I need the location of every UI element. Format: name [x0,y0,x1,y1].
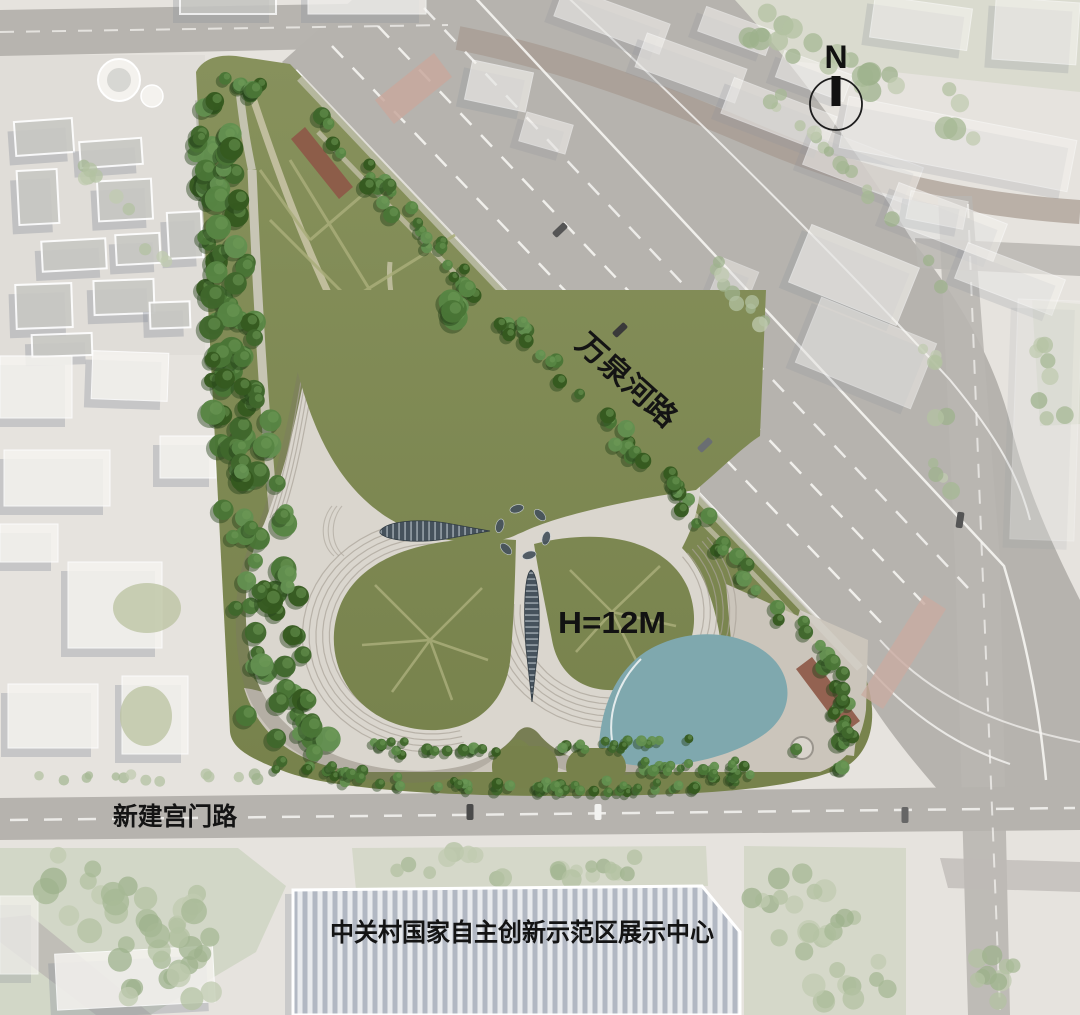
context-building [7,118,75,165]
exhibition-center-building: 中关村国家自主创新示范区展示中心 [285,886,740,1015]
building-height-label: H=12M [558,605,666,640]
exhibition-center-label: 中关村国家自主创新示范区展示中心 [330,918,714,947]
context-building [34,238,107,281]
road-bottom-right [940,858,1080,892]
context-building [0,450,110,515]
context-building [0,896,38,983]
site-plan-rendering: 中关村国家自主创新示范区展示中心 万泉河路 新建宫门路 H=12M N [0,0,1080,1015]
car [467,804,474,820]
context-building [0,356,72,427]
context-building [153,436,216,487]
context-building [984,0,1080,74]
context-building [90,179,153,231]
north-needle [832,76,841,106]
car [595,804,602,820]
courtyard-lawn [113,583,181,633]
round-building-small [141,85,163,107]
context-building [108,233,161,275]
round-building-core [107,68,131,92]
context-building [0,524,58,571]
road-label-xinjiangongmen: 新建宫门路 [113,802,238,831]
north-letter: N [824,39,847,75]
exhibition-center-roof [293,886,740,1015]
context-building [173,0,276,23]
courtyard-lawn [120,686,172,746]
context-building [84,350,169,410]
context-building [1,684,98,757]
context-building [8,283,73,338]
site-plan-canvas: 中关村国家自主创新示范区展示中心 万泉河路 新建宫门路 H=12M N [0,0,1080,1015]
car [902,807,909,823]
context-building [143,301,191,338]
context-building [1003,299,1080,550]
context-building [301,0,426,23]
context-building [10,169,60,234]
